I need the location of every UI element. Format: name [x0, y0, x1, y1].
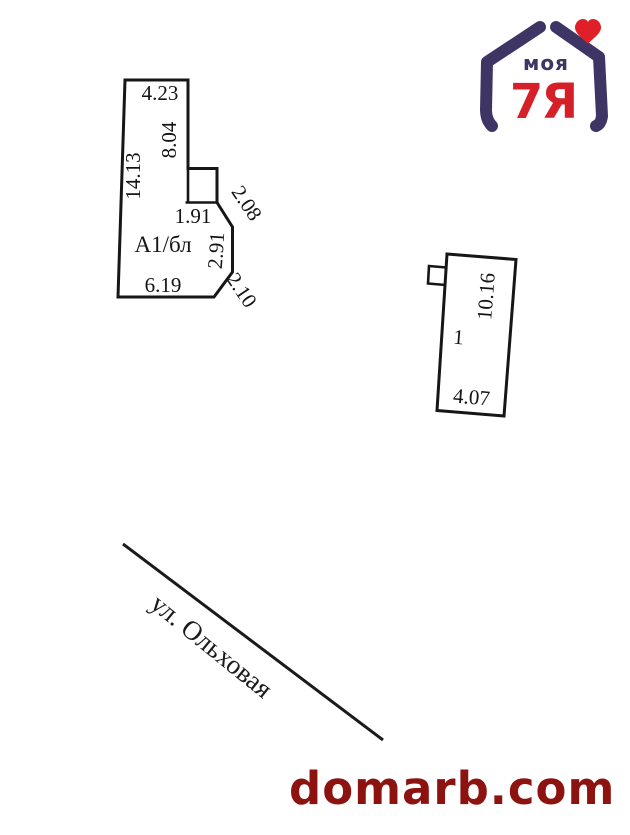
dim-right-upper: 8.04 — [157, 121, 181, 158]
building-right: 10.16 1 4.07 — [428, 254, 516, 416]
street-line — [123, 544, 383, 740]
dim-top: 4.23 — [142, 81, 179, 105]
dim-diag-upper: 2.08 — [227, 181, 267, 225]
dim-right-lower: 2.91 — [203, 231, 230, 269]
dim-left: 14.13 — [121, 152, 145, 199]
brand-logo: моя 7Я — [470, 10, 620, 140]
dim-annex-bottom: 1.91 — [175, 204, 212, 228]
street: ул. Ольховая — [123, 544, 383, 740]
building-left-label: А1/бл — [134, 232, 191, 257]
dim-bottom-right-building: 4.07 — [452, 384, 491, 411]
brand-text-top: моя — [523, 51, 569, 75]
watermark-text: domarb.com — [289, 766, 615, 812]
dim-right: 10.16 — [472, 272, 500, 321]
building-left: 4.23 8.04 14.13 1.91 2.08 А1/бл 2.91 6.1… — [118, 80, 267, 312]
brand-text-bottom: 7Я — [510, 74, 576, 130]
building-right-label: 1 — [452, 325, 464, 350]
dim-bottom: 6.19 — [145, 273, 182, 297]
